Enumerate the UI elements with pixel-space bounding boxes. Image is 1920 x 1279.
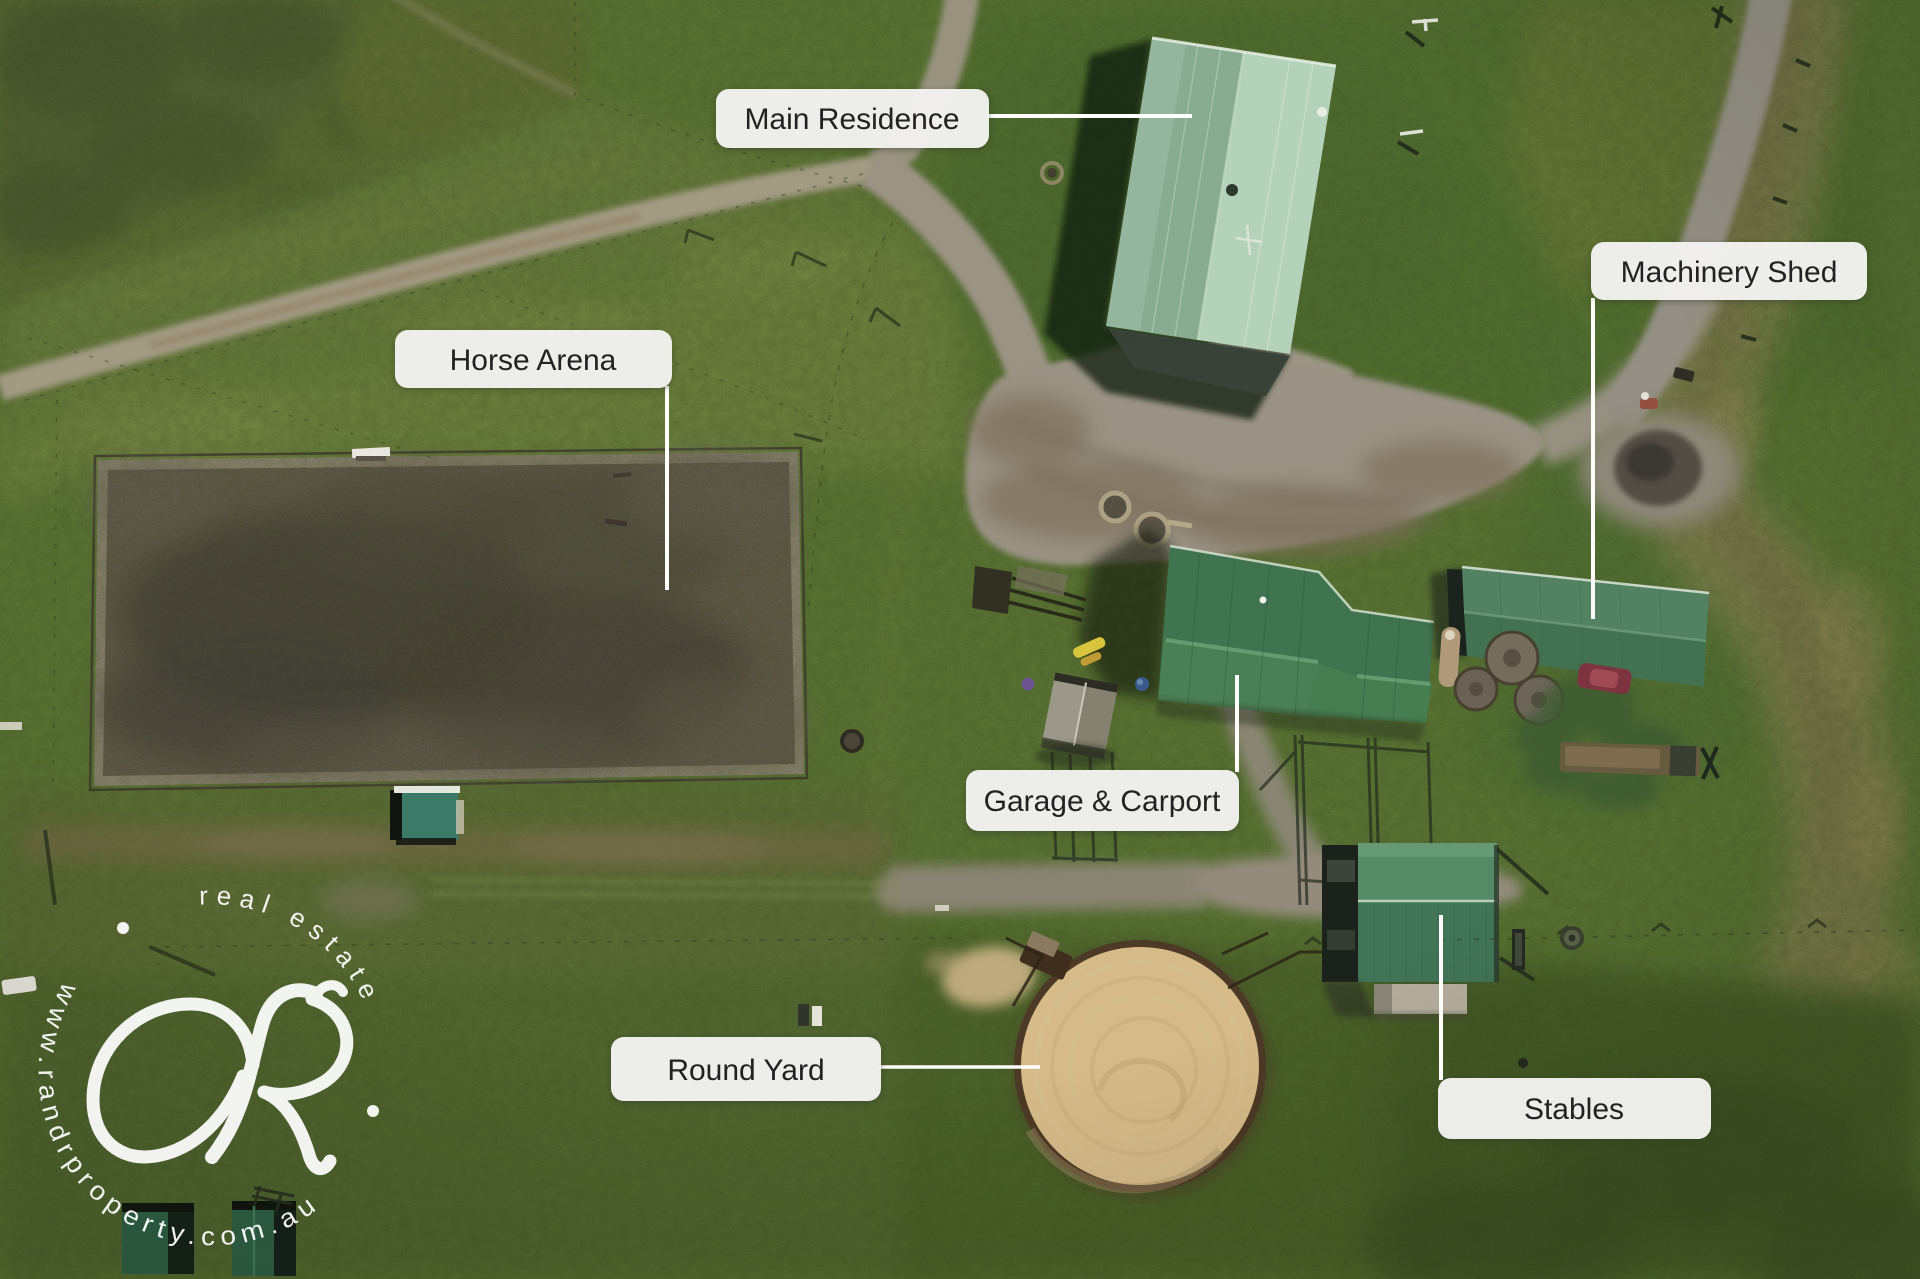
svg-text:Machinery Shed: Machinery Shed (1621, 256, 1838, 289)
svg-text:Garage & Carport: Garage & Carport (984, 785, 1221, 818)
svg-text:Round Yard: Round Yard (667, 1054, 824, 1087)
svg-text:Horse Arena: Horse Arena (450, 344, 617, 377)
svg-text:Main Residence: Main Residence (744, 103, 959, 136)
svg-text:Stables: Stables (1524, 1093, 1624, 1126)
